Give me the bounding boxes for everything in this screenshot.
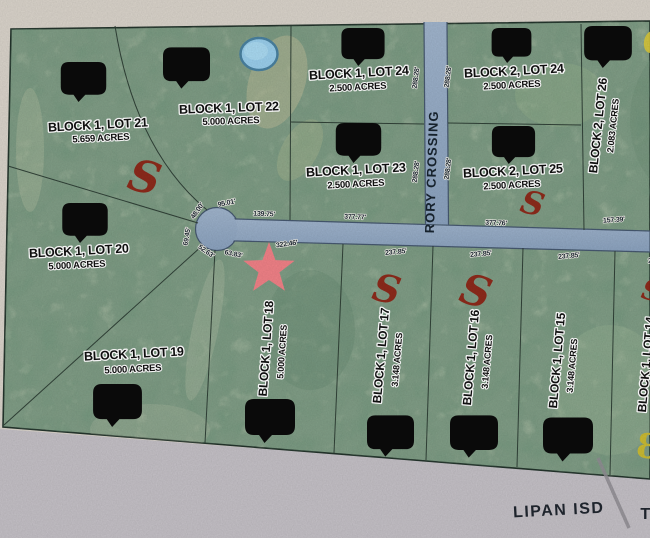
photo-grain-overlay (0, 0, 650, 538)
plat-map-svg: BLOCK 1, LOT 21 5.659 ACRES BLOCK 1, LOT… (0, 0, 650, 538)
plat-map-photo: BLOCK 1, LOT 21 5.659 ACRES BLOCK 1, LOT… (0, 0, 650, 538)
